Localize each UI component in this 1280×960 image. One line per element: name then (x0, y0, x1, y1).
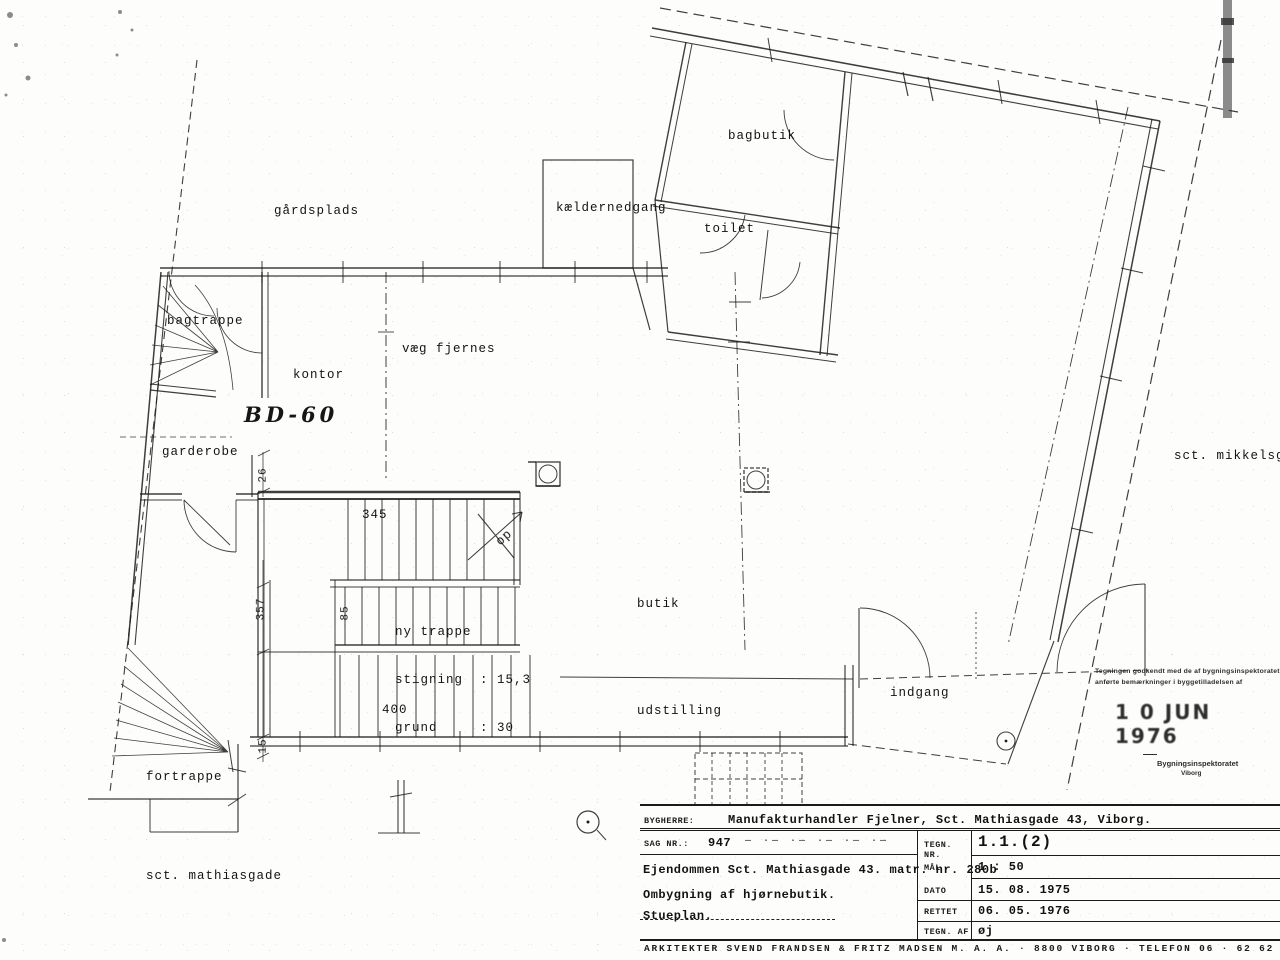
annotation-bd60: BD-60 (244, 402, 338, 427)
project-line2: Ombygning af hjørnebutik. (643, 888, 836, 902)
drawing-number-label: TEGN. NR. (924, 840, 971, 860)
date-label: DATO (924, 886, 971, 896)
dimension-357: 357 (255, 598, 267, 621)
stamp-city: Viborg (1181, 770, 1280, 777)
subtable-rule-2 (971, 878, 1280, 879)
dimension-15: 15 (258, 738, 270, 753)
title-block-case-row: SAG NR.: 947 — ·— ·— ·— ·— ·— (640, 831, 917, 855)
client-value: Manufakturhandler Fjelner, Sct. Mathiasg… (728, 813, 1152, 827)
scale-value: 1 : 50 (978, 860, 1024, 874)
stair-note-line1: ny trappe (395, 624, 531, 640)
stamp-divider (1143, 754, 1157, 755)
room-label-garderobe: garderobe (162, 445, 239, 459)
project-line3: Stueplan. (643, 909, 712, 923)
stamp-office: Bygningsinspektoratet (1157, 759, 1280, 768)
room-label-toilet: toilet (704, 222, 755, 236)
subtable-rule-4 (918, 921, 1280, 922)
subtable-rule-1 (971, 855, 1280, 856)
stamp-text-line2: anførte bemærkninger i byggetilladelsen … (1095, 679, 1280, 686)
room-label-fortrappe: fortrappe (146, 770, 223, 784)
room-label-kontor: kontor (293, 368, 344, 382)
annotation-vaeg-fjernes: væg fjernes (402, 342, 496, 356)
stamp-text-line1: Tegningen godkendt med de af bygningsins… (1095, 668, 1280, 675)
title-block-client-row: BYGHERRE: Manufakturhandler Fjelner, Sct… (640, 806, 1280, 831)
drawn-by-value: øj (978, 924, 993, 938)
stair-note-line3: grund : 30 (395, 720, 531, 736)
drawn-by-label: TEGN. AF (924, 927, 971, 937)
room-label-udstilling: udstilling (637, 704, 722, 718)
room-label-bagtrappe: bagtrappe (167, 314, 244, 328)
stair-note: ny trappe stigning : 15,3 grund : 30 (395, 592, 531, 768)
stamp-date: 1 0 JUN 1976 (1115, 700, 1280, 748)
revised-label: RETTET (924, 907, 971, 917)
client-label: BYGHERRE: (644, 816, 694, 826)
title-block: BYGHERRE: Manufakturhandler Fjelner, Sct… (640, 804, 1280, 941)
subtable-divider (971, 831, 972, 939)
case-number-filler: — ·— ·— ·— ·— ·— (745, 836, 889, 847)
approval-stamp: Tegningen godkendt med de af bygningsins… (1095, 668, 1280, 777)
case-number-label: SAG NR.: (644, 839, 689, 849)
architect-footer: ARKITEKTER SVEND FRANDSEN & FRITZ MADSEN… (644, 943, 1280, 958)
project-underline (640, 919, 835, 920)
dimension-26: 26 (258, 467, 270, 482)
dimension-345: 345 (362, 508, 388, 522)
room-label-bagbutik: bagbutik (728, 129, 796, 143)
stair-note-line2: stigning : 15,3 (395, 672, 531, 688)
scale-label: MÅL (924, 863, 971, 873)
street-label-mathiasgade: sct. mathiasgade (146, 869, 282, 883)
case-number-value: 947 (708, 836, 731, 850)
title-block-project-cell: Ejendommen Sct. Mathiasgade 43. matr. nr… (640, 855, 917, 939)
title-block-subtable: TEGN. NR. 1.1.(2) MÅL 1 : 50 DATO 15. 08… (917, 831, 1280, 939)
subtable-rule-3 (918, 900, 1280, 901)
room-label-kaeldernedgang: kældernedgang (556, 201, 667, 215)
dimension-85: 85 (340, 605, 352, 620)
floorplan-sheet: gårdsplads kældernedgang bagbutik toilet… (0, 0, 1280, 960)
room-label-butik: butik (637, 597, 680, 611)
street-label-mikkelsgade: sct. mikkelsga (1174, 449, 1280, 463)
revised-value: 06. 05. 1976 (978, 904, 1070, 918)
date-value: 15. 08. 1975 (978, 883, 1070, 897)
room-label-gaardsplads: gårdsplads (274, 204, 359, 218)
drawing-number-value: 1.1.(2) (978, 833, 1052, 851)
room-label-indgang: indgang (890, 686, 950, 700)
